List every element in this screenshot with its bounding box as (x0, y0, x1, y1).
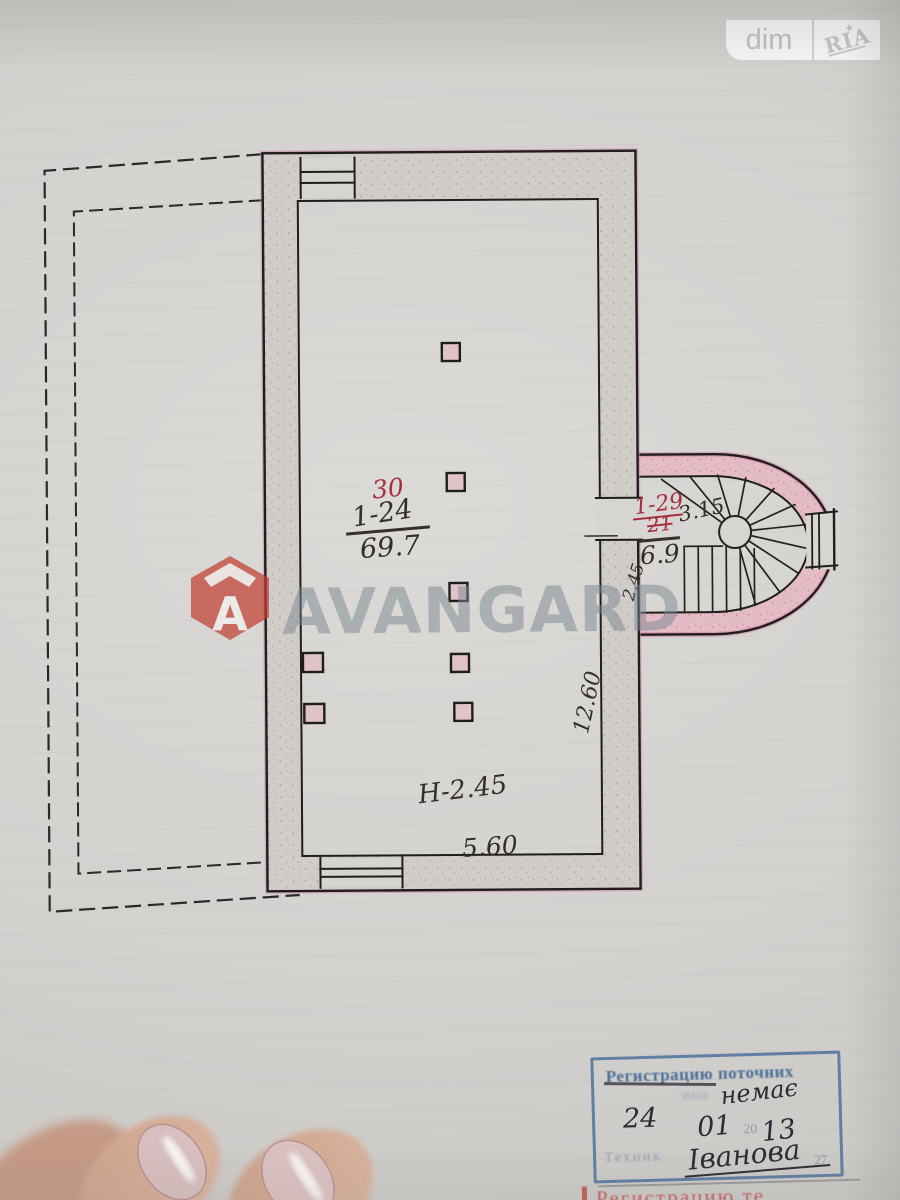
avangard-logo-letter: A (212, 587, 248, 640)
tower-window (806, 509, 840, 569)
photo-shadow-right (845, 0, 900, 1200)
top-window (300, 158, 354, 198)
stamp-date-day: 24 (623, 1103, 658, 1135)
photo-shadow-top (0, 0, 900, 70)
photo-shadow-bottom (0, 1140, 900, 1200)
avangard-logo-icon: A (190, 556, 270, 640)
avangard-watermark-text: AVANGARD (282, 572, 682, 648)
room-area-label: 69.7 (359, 530, 421, 565)
floor-plan-photo: 30 1-24 69.7 1-29 21 6.9 3.15 2.45 12.60… (0, 0, 900, 1200)
bottom-window (320, 857, 402, 888)
stamp-printed-line2: змін (680, 1087, 708, 1105)
stair-center-column (719, 516, 751, 548)
stair-old-number-label: 21 (646, 511, 674, 538)
stamp-date-month: 01 (696, 1110, 733, 1144)
stamp-year-prefix: 20 (743, 1122, 757, 1138)
room-width-label: 5.60 (461, 830, 519, 863)
